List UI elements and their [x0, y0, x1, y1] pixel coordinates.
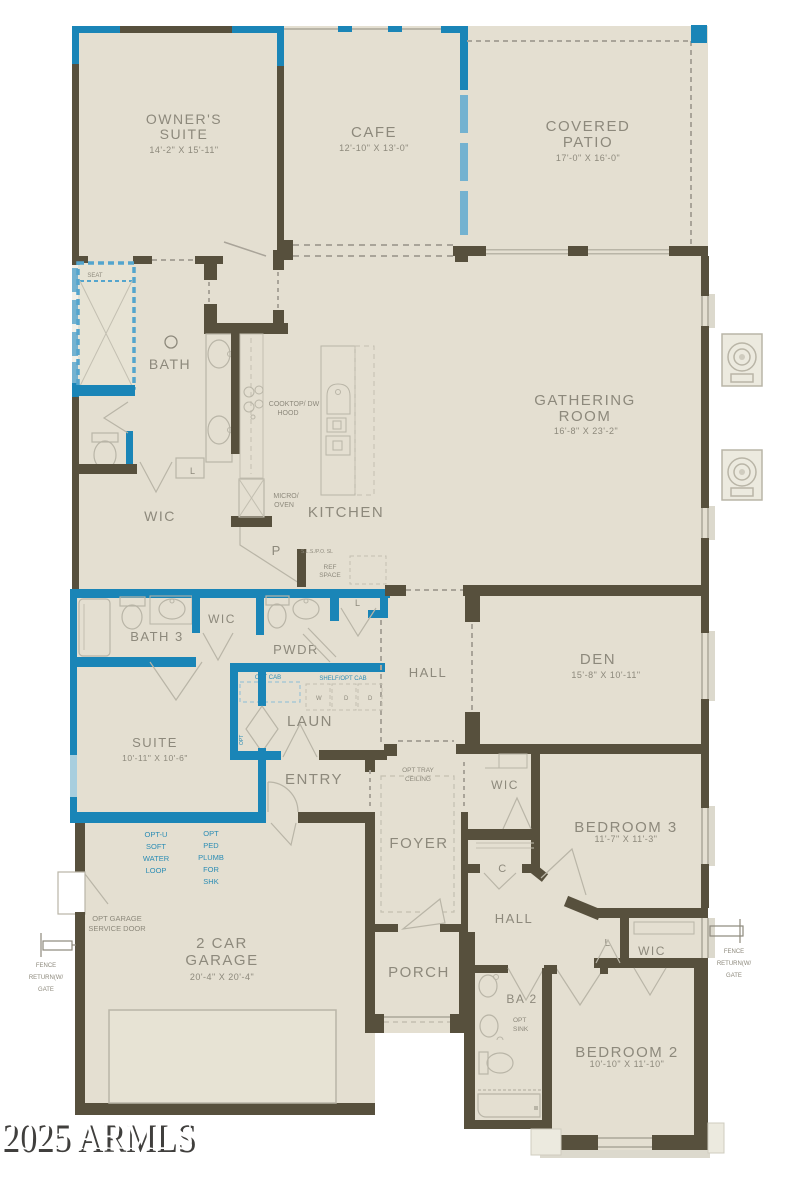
svg-text:SOFT: SOFT: [146, 842, 166, 851]
svg-text:16'-8" X 23'-2": 16'-8" X 23'-2": [554, 426, 618, 436]
svg-text:17'-0" X 16'-0": 17'-0" X 16'-0": [556, 153, 620, 163]
svg-text:SERVICE DOOR: SERVICE DOOR: [88, 924, 146, 933]
svg-text:FOYER: FOYER: [389, 835, 448, 852]
svg-text:PATIO: PATIO: [563, 134, 613, 151]
svg-text:L: L: [355, 598, 360, 608]
svg-text:ENTRY: ENTRY: [285, 771, 343, 788]
svg-text:BA 2: BA 2: [506, 992, 537, 1006]
svg-text:KITCHEN: KITCHEN: [308, 504, 384, 521]
svg-text:PWDR: PWDR: [273, 642, 319, 657]
svg-text:RETURN(W/: RETURN(W/: [29, 975, 64, 981]
svg-text:12'-10" X 13'-0": 12'-10" X 13'-0": [339, 143, 409, 153]
svg-text:GATHERING: GATHERING: [534, 392, 636, 409]
svg-text:S.L.S./P.O. SL: S.L.S./P.O. SL: [301, 549, 333, 555]
svg-text:GATE: GATE: [38, 987, 54, 993]
svg-text:11'-7" X 11'-3": 11'-7" X 11'-3": [594, 834, 657, 844]
svg-text:PORCH: PORCH: [388, 964, 450, 981]
svg-text:BATH 3: BATH 3: [130, 629, 184, 644]
svg-text:LAUN: LAUN: [287, 713, 333, 730]
svg-text:WATER: WATER: [143, 854, 170, 863]
svg-text:2 CAR: 2 CAR: [196, 935, 248, 952]
svg-text:FENCE: FENCE: [36, 963, 56, 969]
svg-text:C: C: [498, 863, 507, 875]
svg-text:OPT: OPT: [513, 1017, 526, 1024]
svg-text:OVEN: OVEN: [274, 502, 294, 509]
svg-text:CAFE: CAFE: [351, 124, 397, 141]
svg-text:OWNER'S: OWNER'S: [146, 111, 222, 127]
svg-text:20'-4" X 20'-4": 20'-4" X 20'-4": [190, 972, 254, 982]
svg-text:D: D: [368, 696, 373, 702]
svg-text:SUITE: SUITE: [160, 126, 209, 142]
svg-text:WIC: WIC: [144, 508, 176, 524]
svg-text:HOOD: HOOD: [278, 410, 299, 417]
svg-text:HALL: HALL: [495, 911, 534, 926]
svg-text:MICRO/: MICRO/: [273, 493, 298, 500]
svg-text:SUITE: SUITE: [132, 735, 178, 750]
svg-text:SEAT: SEAT: [87, 273, 103, 279]
svg-text:D: D: [344, 696, 349, 702]
svg-text:14'-2" X 15'-11": 14'-2" X 15'-11": [149, 145, 218, 155]
svg-text:OPT TRAY: OPT TRAY: [402, 767, 434, 774]
svg-text:OPT: OPT: [203, 829, 219, 838]
svg-text:HALL: HALL: [409, 665, 448, 680]
svg-text:RETURN(W/: RETURN(W/: [717, 961, 752, 967]
svg-text:WIC: WIC: [491, 778, 519, 792]
svg-text:OPT GARAGE: OPT GARAGE: [92, 914, 141, 923]
svg-text:GATE: GATE: [726, 973, 742, 979]
svg-text:DEN: DEN: [580, 651, 616, 668]
svg-text:2025 ARMLS: 2025 ARMLS: [0, 1113, 194, 1158]
svg-text:OPT: OPT: [239, 735, 245, 745]
svg-text:COOKTOP/ DW: COOKTOP/ DW: [269, 401, 320, 408]
svg-text:SINK: SINK: [513, 1026, 529, 1033]
svg-text:WIC: WIC: [208, 612, 236, 626]
svg-text:15'-8" X 10'-11": 15'-8" X 10'-11": [571, 670, 640, 680]
svg-text:SHELF/OPT CAB: SHELF/OPT CAB: [319, 676, 366, 682]
svg-text:PED: PED: [203, 841, 219, 850]
svg-text:SHK: SHK: [203, 877, 218, 886]
svg-text:LOOP: LOOP: [146, 866, 167, 875]
svg-text:BATH: BATH: [149, 356, 191, 372]
svg-text:10'-10" X 11'-10": 10'-10" X 11'-10": [590, 1059, 665, 1069]
svg-text:FOR: FOR: [203, 865, 219, 874]
svg-text:WIC: WIC: [638, 944, 666, 958]
svg-text:FENCE: FENCE: [724, 949, 744, 955]
svg-text:SPACE: SPACE: [319, 572, 341, 579]
svg-text:COVERED: COVERED: [546, 118, 631, 135]
svg-text:PLUMB: PLUMB: [198, 853, 224, 862]
svg-text:W: W: [316, 696, 322, 702]
svg-text:L: L: [190, 466, 195, 476]
svg-text:OPT-U: OPT-U: [145, 830, 168, 839]
svg-text:P: P: [272, 543, 281, 558]
svg-text:10'-11" X 10'-6": 10'-11" X 10'-6": [122, 753, 188, 763]
svg-text:REF: REF: [324, 564, 337, 571]
svg-text:ROOM: ROOM: [559, 408, 612, 425]
svg-text:GARAGE: GARAGE: [185, 952, 258, 969]
svg-text:CEILING: CEILING: [405, 776, 431, 783]
